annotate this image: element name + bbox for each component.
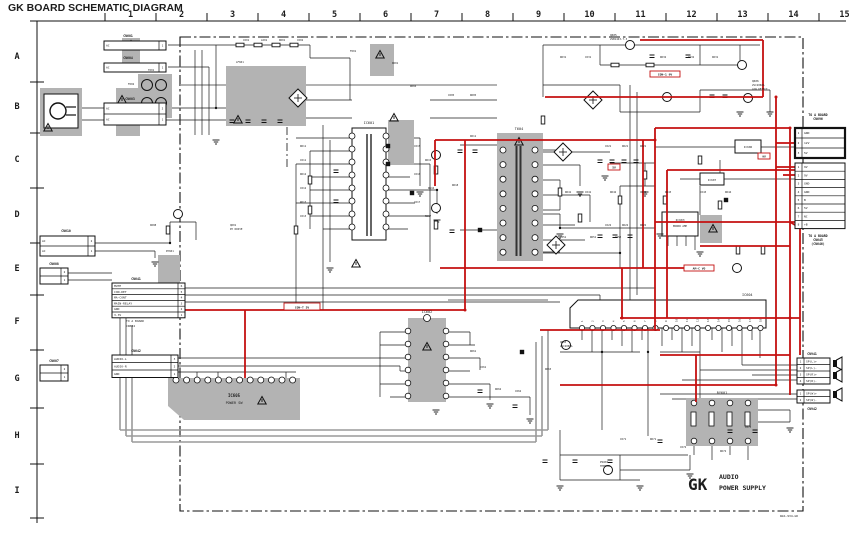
ref-designator: C643: [700, 190, 707, 194]
part-label: IC607: [708, 178, 717, 182]
pin-label: AUDIO-R: [114, 364, 127, 368]
speaker-icon: [837, 388, 843, 401]
ref-designator: R651: [590, 235, 597, 239]
ref-designator: R631: [560, 55, 567, 59]
resistor-icon: [578, 214, 582, 222]
resistor-icon: [290, 43, 298, 47]
red-junction-dot: [789, 127, 792, 130]
ry601-pin: [745, 400, 751, 406]
pin-label: SP(R)-: [806, 379, 817, 383]
resistor-icon: [646, 63, 654, 67]
pin-label: SP(W)+: [806, 391, 817, 395]
ic604-pin-label: 10: [675, 318, 679, 322]
pin-label: AUDIO-L: [114, 357, 127, 361]
connector-caption: (CN646): [811, 242, 825, 246]
t604-pin: [500, 205, 506, 211]
t604-pin: [532, 220, 538, 226]
connector-outline: [104, 63, 166, 72]
t604-pin: [532, 176, 538, 182]
ref-designator: C632: [688, 55, 695, 59]
ry601-coil: [727, 412, 732, 426]
grid-col-2: 2: [179, 10, 184, 20]
connector-outline: [104, 41, 166, 50]
ic602-dip: [408, 318, 446, 402]
pin-label: 5V: [804, 206, 808, 210]
ic604-pin: [684, 325, 689, 330]
pin-label: GND: [114, 307, 120, 311]
grid-row-B: B: [14, 102, 19, 112]
connector-caption: CN607: [49, 359, 59, 363]
resistor-icon: [558, 188, 562, 196]
transistor-icon: [733, 264, 742, 273]
ic602-pin: [405, 341, 411, 347]
red-label-text: CON-1 9V: [658, 73, 673, 77]
ry601-pin: [691, 438, 697, 444]
resistor-icon: [761, 246, 765, 254]
speaker-icon: [837, 369, 843, 382]
part-label: Q606: [752, 79, 759, 83]
connector-CN942: 1SP(W)+2SP(W)-CN942: [797, 390, 830, 411]
ry601-pin: [709, 400, 715, 406]
connector-caption: CN603: [125, 97, 135, 101]
schematic-canvas: GK BOARD SCHEMATIC DIAGRAM 1234567891011…: [0, 0, 849, 540]
ref-designator: R661: [470, 349, 477, 353]
ic601-pin: [349, 172, 355, 178]
ic604-pin: [716, 325, 721, 330]
red-voltage-label: AM-C VO: [684, 265, 714, 271]
pin-label: 5V: [804, 151, 808, 155]
ref-designator: D631: [712, 55, 719, 59]
ic602-pin: [443, 354, 449, 360]
resistor-icon: [308, 206, 312, 214]
ref-designator: R662: [495, 387, 502, 391]
red-junction-dot: [621, 317, 624, 320]
grid-col-4: 4: [281, 10, 286, 20]
ref-designator: C673: [745, 425, 752, 429]
ic605-pin: [268, 377, 274, 383]
grid-row-I: I: [14, 486, 19, 496]
ref-designator: C602: [297, 38, 304, 42]
ic604-pin-label: 15: [727, 318, 731, 322]
grid-row-H: H: [14, 431, 19, 441]
part-label: IC606: [744, 145, 753, 149]
grid-row-D: D: [14, 210, 19, 220]
ic602-pin: [443, 341, 449, 347]
ref-designator: L601: [261, 38, 268, 42]
transistor-icon: [432, 151, 441, 160]
ref-designator: R622: [622, 223, 629, 227]
ref-designator: F602: [128, 82, 135, 86]
red-label-text: 9V: [762, 155, 766, 159]
pin-label: 12V: [804, 141, 810, 145]
t604-pin: [500, 220, 506, 226]
ic601-pin: [349, 224, 355, 230]
ic604-pin: [663, 325, 668, 330]
resistor-icon: [434, 221, 438, 229]
junction-dot: [169, 242, 171, 244]
ref-designator: C601: [243, 38, 250, 42]
grid-col-5: 5: [332, 10, 337, 20]
part-label: PS601: [600, 460, 609, 464]
connector-CN608: 21CN608: [40, 262, 68, 284]
pin-label: GND: [804, 131, 810, 135]
grid-col-9: 9: [536, 10, 541, 20]
resistor-icon: [254, 43, 262, 47]
red-label-text: AM-C VO: [693, 267, 706, 271]
grid-row-G: G: [14, 374, 19, 384]
ic601-body: [352, 128, 386, 240]
t604-pin: [500, 162, 506, 168]
board-subtitle-2: POWER SUPPLY: [719, 484, 766, 492]
red-voltage-label: CON-T 5V: [284, 303, 320, 310]
ic604-pin-label: 16: [738, 318, 742, 322]
t604-pin: [500, 176, 506, 182]
t604-pin: [532, 235, 538, 241]
pin-label: SP(R)+: [806, 372, 817, 376]
ref-designator: C661: [480, 365, 487, 369]
ic605-pin: [279, 377, 285, 383]
connector-CN941: 1SP(L)+2SP(L)-3SP(R)+4SP(R)-CN941: [797, 352, 830, 384]
grid-col-6: 6: [383, 10, 388, 20]
pin-label: 9V: [804, 173, 808, 177]
ref-designator: R612: [300, 172, 307, 176]
ic604-pin: [695, 325, 700, 330]
t604-pin: [532, 147, 538, 153]
ref-designator: C652: [615, 235, 622, 239]
pin-label: 3.3V: [114, 313, 121, 317]
ref-designator: C613: [300, 214, 307, 218]
grid-col-12: 12: [686, 10, 696, 20]
ref-designator: D621: [640, 144, 647, 148]
red-junction-dot: [775, 384, 778, 387]
ref-designator: Q603: [560, 340, 567, 344]
connector-outline: [795, 128, 845, 158]
pad-square: [386, 144, 390, 148]
ref-designator: 2SC2060A: [560, 344, 573, 348]
ic601-pin: [349, 211, 355, 217]
ref-designator: R615: [425, 158, 432, 162]
ref-designator: C672: [680, 445, 687, 449]
ic601-pin: [349, 146, 355, 152]
connector-caption: CN696: [813, 117, 823, 121]
part-label: TO A BOARD: [126, 319, 144, 323]
ry601-coil: [745, 412, 750, 426]
grid-col-8: 8: [485, 10, 490, 20]
pin-label: AC: [106, 44, 110, 48]
pin-label: CON-DET: [114, 290, 127, 294]
red-label-text: CON-T 5V: [295, 306, 310, 310]
junction-dot: [601, 351, 603, 353]
ref-designator: R611: [300, 144, 307, 148]
red-voltage-label: 9V: [758, 153, 770, 159]
ref-designator: C631: [585, 55, 592, 59]
ref-designator: R601: [279, 38, 286, 42]
pin-label: GND: [804, 182, 810, 186]
schematic-page: { "title": "GK BOARD SCHEMATIC DIAGRAM",…: [0, 0, 849, 540]
ic604-pin-label: 13: [706, 318, 710, 322]
part-label: THERMAL: [600, 464, 611, 468]
grid-col-15: 15: [839, 10, 849, 20]
ref-designator: RY601: [166, 249, 174, 253]
ref-designator: Q601: [230, 223, 237, 227]
ic604-pin: [705, 325, 710, 330]
board-code: GK: [688, 475, 708, 494]
junction-dot: [619, 252, 621, 254]
transistor-icon: [744, 94, 753, 103]
pin-label: GND: [114, 372, 120, 376]
speaker-icon: [833, 391, 837, 398]
speaker-icon: [833, 372, 837, 379]
resistor-icon: [541, 116, 545, 124]
connector-caption: CN942: [807, 407, 817, 411]
t604-pin: [500, 191, 506, 197]
part-label: IC601: [364, 121, 375, 125]
resistor-icon: [736, 246, 740, 254]
connector-caption: CN642: [131, 349, 141, 353]
t604-pin: [500, 235, 506, 241]
pin-label: +B: [804, 223, 808, 227]
ic601-pin: [349, 159, 355, 165]
ic605-pin: [258, 377, 264, 383]
ic602-notch: [424, 315, 431, 322]
red-junction-dot: [464, 309, 467, 312]
transistor-icon: [626, 41, 635, 50]
connector-caption: CN941: [807, 352, 817, 356]
t604-pin: [500, 147, 506, 153]
ic605-pin: [194, 377, 200, 383]
pin-label: B: [804, 198, 806, 202]
ic601-pin: [383, 133, 389, 139]
ry601-pin: [709, 438, 715, 444]
ref-designator: R621: [622, 144, 629, 148]
ic604-pin-label: 11: [685, 318, 689, 322]
part-label: 2SB1443-7-3: [610, 37, 628, 41]
transistor-icon: [738, 61, 747, 70]
part-label: 2SC2060A: [752, 83, 765, 87]
ic604-pin-label: 14: [717, 318, 721, 322]
t604-pin: [532, 249, 538, 255]
ref-designator: R604: [410, 84, 417, 88]
pin-label: AC: [42, 249, 46, 253]
ic602-pin: [443, 328, 449, 334]
ref-designator: C621: [605, 144, 612, 148]
transistor-icon: [432, 204, 441, 213]
pad-square: [386, 162, 390, 166]
speaker-icon: [833, 360, 837, 367]
part-label: IC605: [228, 393, 241, 398]
ref-designator: C617: [414, 200, 421, 204]
part-label: RY601: [717, 391, 728, 395]
ic604-pin: [758, 325, 763, 330]
ic605-pin: [247, 377, 253, 383]
junction-dot: [215, 107, 217, 109]
resistor-icon: [272, 43, 280, 47]
part-label: IC603: [675, 218, 684, 222]
ic601-pin: [383, 224, 389, 230]
ic601-pin: [383, 172, 389, 178]
ref-designator: C622: [605, 223, 612, 227]
junction-dot: [436, 189, 438, 191]
caution-block-top: [370, 44, 394, 76]
grid-col-14: 14: [788, 10, 798, 20]
part-label: IC602: [422, 310, 433, 314]
ic601-pin: [349, 133, 355, 139]
ac-plug-body: [44, 94, 78, 128]
junction-dot: [647, 351, 649, 353]
part-label: ERROR AMP: [673, 224, 687, 228]
speaker-icon: [837, 357, 843, 370]
pin-label: AC: [42, 239, 46, 243]
red-voltage-label: 5V: [608, 164, 620, 170]
ic605-pin: [205, 377, 211, 383]
t604-pin: [532, 205, 538, 211]
ry601-pin: [727, 400, 733, 406]
ic605-power-sw: [168, 378, 300, 420]
caution-block-mid: [388, 120, 414, 165]
ref-designator: R643: [665, 190, 672, 194]
connector-CN642: 3AUDIO-L2AUDIO-R1GNDCN642: [112, 349, 178, 378]
ref-designator: D622: [640, 223, 647, 227]
ic604-pin: [747, 325, 752, 330]
resistor-icon: [618, 196, 622, 204]
ry601-pin: [727, 438, 733, 444]
part-label: WGS-934-GK: [780, 514, 798, 518]
connector-caption: CN641: [131, 277, 141, 281]
part-label: POWER SW: [226, 401, 244, 405]
ry601-coil: [691, 412, 696, 426]
ry601-coil: [709, 412, 714, 426]
resistor-icon: [611, 63, 619, 67]
ic602-pin: [443, 367, 449, 373]
ref-designator: R672: [720, 449, 727, 453]
resistor-icon: [308, 176, 312, 184]
ic605-pin: [237, 377, 243, 383]
pin-label: AC: [106, 118, 110, 122]
connector-caption: CN610: [61, 229, 71, 233]
page-title: GK BOARD SCHEMATIC DIAGRAM: [8, 2, 183, 14]
ic602-pin: [405, 380, 411, 386]
t604-pin: [532, 191, 538, 197]
ic604-pin: [726, 325, 731, 330]
pin-label: SP(W)-: [806, 398, 817, 402]
ic604-pin: [737, 325, 742, 330]
ref-designator: C651: [560, 235, 567, 239]
ic604-pin-label: 17: [748, 318, 752, 322]
ic601-pin: [349, 185, 355, 191]
red-junction-dot: [789, 317, 792, 320]
ic602-pin: [443, 393, 449, 399]
ic604-body: [570, 300, 766, 328]
pin-label: SP(L)+: [806, 359, 817, 363]
ic601-pin: [383, 185, 389, 191]
connector-CN607: 21CN607: [40, 359, 68, 381]
resistor-icon: [166, 226, 170, 234]
grid-col-3: 3: [230, 10, 235, 20]
ref-designator: C611: [300, 158, 307, 162]
ref-designator: R632: [660, 55, 667, 59]
pin-label: MUTE: [114, 284, 121, 288]
t604-pin: [500, 249, 506, 255]
ref-designator: R671: [650, 437, 657, 441]
red-junction-dot: [775, 96, 778, 99]
ic604-pin-label: 18: [759, 318, 763, 322]
resistor-icon: [698, 156, 702, 164]
resistor-icon: [294, 226, 298, 234]
grid-col-13: 13: [737, 10, 747, 20]
ref-designator: R663: [545, 367, 552, 371]
junction-dot: [559, 227, 561, 229]
grid-col-11: 11: [635, 10, 645, 20]
pin-label: MA-CONT: [114, 296, 127, 300]
grid-row-C: C: [14, 155, 19, 165]
connector-caption: CN601: [123, 34, 133, 38]
grid-col-1: 1: [128, 10, 133, 20]
part-label: Q605: [610, 33, 617, 37]
ic601-pin: [383, 198, 389, 204]
pad-square: [724, 198, 728, 202]
part-label: IC604: [742, 293, 753, 297]
ref-designator: C662: [515, 389, 522, 393]
pin-label: 9V: [804, 165, 808, 169]
connector-caption: CN608: [49, 262, 59, 266]
ref-designator: C616: [414, 172, 421, 176]
ic602-pin: [405, 328, 411, 334]
ic602-pin: [405, 354, 411, 360]
ref-designator: C641: [585, 190, 592, 194]
resistor-icon: [236, 43, 244, 47]
pin-label: MAIN-RELAY: [114, 301, 132, 305]
board-subtitle-1: AUDIO: [719, 473, 739, 481]
ref-designator: LF601: [236, 60, 244, 64]
ref-designator: R616: [428, 186, 435, 190]
pin-label: AC: [106, 66, 110, 70]
ref-designator: C671: [620, 437, 627, 441]
part-label: LOW DETECT: [752, 87, 768, 91]
grid-row-A: A: [14, 52, 19, 62]
pin-label: AC: [106, 107, 110, 111]
red-junction-dot: [654, 139, 657, 142]
ic602-pin: [443, 380, 449, 386]
ic605-pin: [184, 377, 190, 383]
ref-designator: D608: [150, 223, 157, 227]
pad-square: [478, 228, 482, 232]
part-label: T604: [515, 127, 523, 131]
ic602-pin: [405, 367, 411, 373]
ref-designator: C642: [640, 190, 647, 194]
pin-label: NC: [804, 214, 808, 218]
ref-designator: D611: [470, 134, 477, 138]
ref-designator: T601: [148, 68, 155, 72]
ic604-pin: [674, 325, 679, 330]
ref-designator: C615: [414, 144, 421, 148]
transistor-icon: [174, 210, 183, 219]
ref-designator: C612: [300, 186, 307, 190]
pad-square: [520, 350, 524, 354]
ref-designator: R613: [300, 200, 307, 204]
grid-col-7: 7: [434, 10, 439, 20]
ref-designator: R642: [610, 190, 617, 194]
ic604-pin-label: 12: [696, 318, 700, 322]
red-voltage-label: CON-1 9V: [650, 71, 680, 77]
grid-col-10: 10: [584, 10, 594, 20]
pin-label: SP(L)-: [806, 366, 817, 370]
resistor-icon: [718, 201, 722, 209]
ry601-pin: [745, 438, 751, 444]
connector-caption: CN604: [123, 56, 133, 60]
pad-square: [410, 191, 414, 195]
part-label: CN644: [126, 324, 135, 328]
ref-designator: R605: [470, 93, 477, 97]
